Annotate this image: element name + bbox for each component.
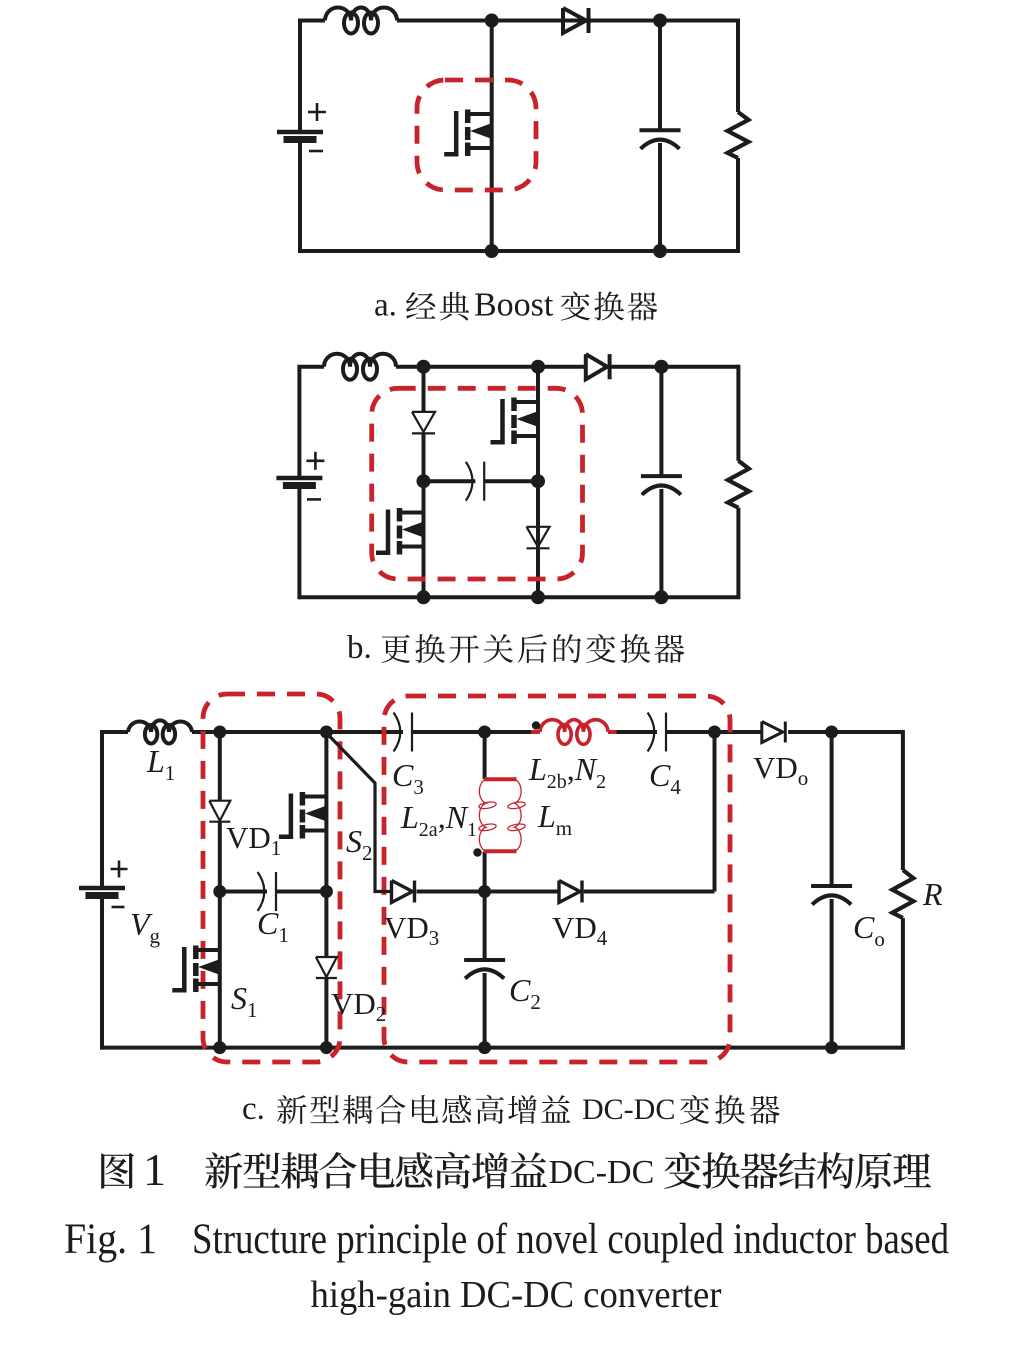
svg-text:1: 1 <box>143 1144 166 1195</box>
svg-text:L2b,N2: L2b,N2 <box>528 751 606 793</box>
svg-text:Boost: Boost <box>474 287 554 324</box>
svg-text:high-gain DC-DC converter: high-gain DC-DC converter <box>311 1274 722 1316</box>
svg-text:DC-DC: DC-DC <box>582 1093 675 1126</box>
svg-text:R: R <box>922 876 943 912</box>
svg-text:Structure principle of novel c: Structure principle of novel coupled ind… <box>192 1216 949 1263</box>
svg-text:L2a,N1: L2a,N1 <box>400 799 477 841</box>
svg-text:a.: a. <box>374 288 397 324</box>
svg-text:b.: b. <box>347 630 372 666</box>
svg-text:c.: c. <box>242 1091 265 1127</box>
svg-text:DC-DC: DC-DC <box>549 1154 655 1191</box>
svg-text:Fig. 1: Fig. 1 <box>64 1216 157 1263</box>
